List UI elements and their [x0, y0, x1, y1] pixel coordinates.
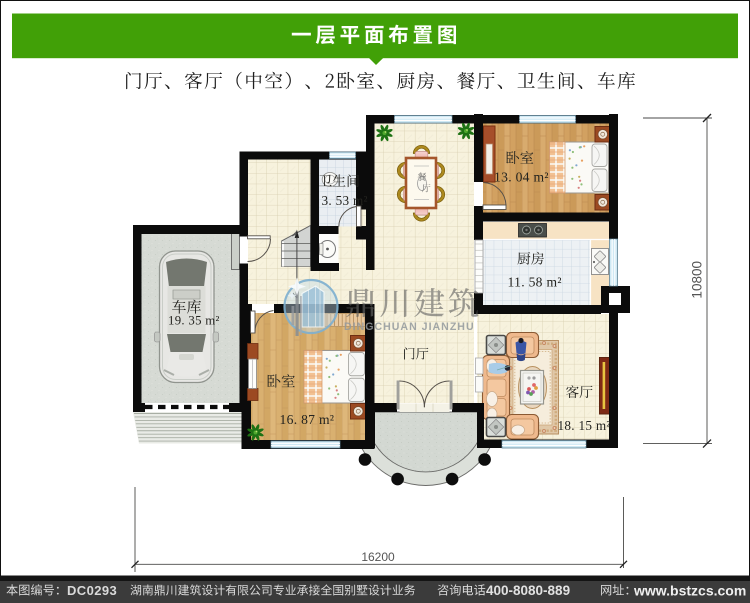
svg-text:13. 04 m²: 13. 04 m²	[494, 170, 549, 185]
svg-text:DC0293: DC0293	[67, 583, 117, 598]
svg-text:19. 35 m²: 19. 35 m²	[168, 314, 220, 328]
svg-text:400-8080-889: 400-8080-889	[486, 583, 570, 598]
svg-text:16. 87 m²: 16. 87 m²	[280, 412, 335, 427]
svg-text:www.bstzcs.com: www.bstzcs.com	[633, 583, 746, 599]
svg-text:16200: 16200	[361, 550, 395, 564]
svg-text:11. 58 m²: 11. 58 m²	[508, 275, 562, 290]
svg-text:DINGCHUAN JIANZHU: DINGCHUAN JIANZHU	[344, 321, 475, 333]
svg-text:3. 53 m²: 3. 53 m²	[322, 193, 368, 208]
svg-text:18. 15 m²: 18. 15 m²	[558, 418, 611, 433]
svg-text:10800: 10800	[690, 261, 705, 299]
